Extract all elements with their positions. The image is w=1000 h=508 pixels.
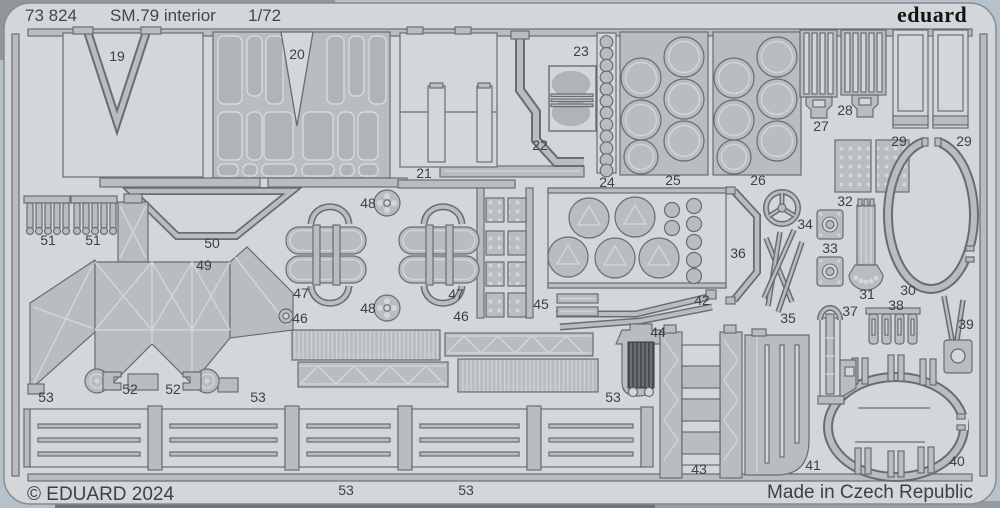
part-48-bottom bbox=[374, 295, 400, 321]
part-19 bbox=[63, 27, 203, 177]
sheet-title: SM.79 interior bbox=[110, 6, 216, 25]
triangle-wheel-panel bbox=[548, 188, 726, 288]
part-number-label: 48 bbox=[360, 300, 376, 316]
part-number-label: 25 bbox=[665, 172, 681, 188]
part-29-left bbox=[893, 30, 928, 128]
part-number-label: 34 bbox=[797, 216, 813, 232]
part-number-label: 45 bbox=[533, 296, 549, 312]
part-number-label: 46 bbox=[453, 308, 469, 324]
part-number-label: 20 bbox=[289, 46, 305, 62]
part-number-label: 53 bbox=[338, 482, 354, 498]
copyright: © EDUARD 2024 bbox=[27, 484, 174, 505]
part-number-label: 37 bbox=[842, 303, 858, 319]
part-number-label: 47 bbox=[448, 286, 464, 302]
part-number-label: 27 bbox=[813, 118, 829, 134]
sheet-number: 73 824 bbox=[25, 6, 77, 25]
part-number-label: 30 bbox=[900, 282, 916, 298]
part-number-label: 44 bbox=[650, 324, 666, 340]
part-25 bbox=[620, 32, 708, 175]
part-number-label: 43 bbox=[691, 461, 707, 477]
part-number-label: 39 bbox=[958, 316, 974, 332]
brand-logo: eduard bbox=[897, 2, 967, 27]
part-43 bbox=[660, 325, 742, 478]
part-number-label: 51 bbox=[40, 232, 56, 248]
part-number-label: 50 bbox=[204, 235, 220, 251]
part-46-right bbox=[445, 333, 598, 392]
part-41 bbox=[745, 329, 809, 475]
part-number-label: 41 bbox=[805, 457, 821, 473]
part-number-label: 29 bbox=[891, 133, 907, 149]
part-number-label: 38 bbox=[888, 297, 904, 313]
part-number-label: 42 bbox=[694, 292, 710, 308]
part-number-label: 23 bbox=[573, 43, 589, 59]
part-48-top bbox=[374, 190, 400, 216]
part-number-label: 53 bbox=[458, 482, 474, 498]
part-number-label: 35 bbox=[780, 310, 796, 326]
part-number-label: 52 bbox=[122, 381, 138, 397]
part-number-label: 32 bbox=[837, 193, 853, 209]
part-number-label: 21 bbox=[416, 165, 432, 181]
part-27 bbox=[800, 30, 837, 118]
part-number-label: 51 bbox=[85, 232, 101, 248]
part-number-label: 31 bbox=[859, 286, 875, 302]
part-26 bbox=[713, 32, 801, 175]
part-number-label: 19 bbox=[109, 48, 125, 64]
part-53-band bbox=[24, 406, 653, 470]
part-number-label: 29 bbox=[956, 133, 972, 149]
part-number-label: 53 bbox=[38, 389, 54, 405]
sheet-scale: 1/72 bbox=[248, 6, 281, 25]
part-51-right bbox=[71, 196, 117, 235]
part-51-left bbox=[24, 196, 70, 235]
part-number-label: 53 bbox=[605, 389, 621, 405]
part-29-right bbox=[933, 30, 968, 128]
part-number-label: 48 bbox=[360, 195, 376, 211]
part-number-label: 36 bbox=[730, 245, 746, 261]
part-number-label: 40 bbox=[949, 453, 965, 469]
part-number-label: 46 bbox=[292, 310, 308, 326]
part-number-label: 22 bbox=[532, 137, 548, 153]
photoetch-fret-photo: 73 824 SM.79 interior 1/72 eduard © EDUA… bbox=[0, 0, 1000, 508]
made-in: Made in Czech Republic bbox=[767, 482, 973, 503]
part-46-left bbox=[292, 330, 448, 387]
part-number-label: 47 bbox=[293, 285, 309, 301]
part-24 bbox=[597, 33, 616, 177]
small-ring bbox=[279, 309, 293, 323]
part-number-label: 26 bbox=[750, 172, 766, 188]
part-number-label: 28 bbox=[837, 102, 853, 118]
part-number-label: 49 bbox=[196, 257, 212, 273]
part-number-label: 33 bbox=[822, 240, 838, 256]
part-number-label: 24 bbox=[599, 174, 615, 190]
fret-sheet: 73 824 SM.79 interior 1/72 eduard © EDUA… bbox=[0, 0, 1000, 508]
part-21 bbox=[400, 27, 497, 167]
part-number-label: 53 bbox=[250, 389, 266, 405]
part-number-label: 52 bbox=[165, 381, 181, 397]
